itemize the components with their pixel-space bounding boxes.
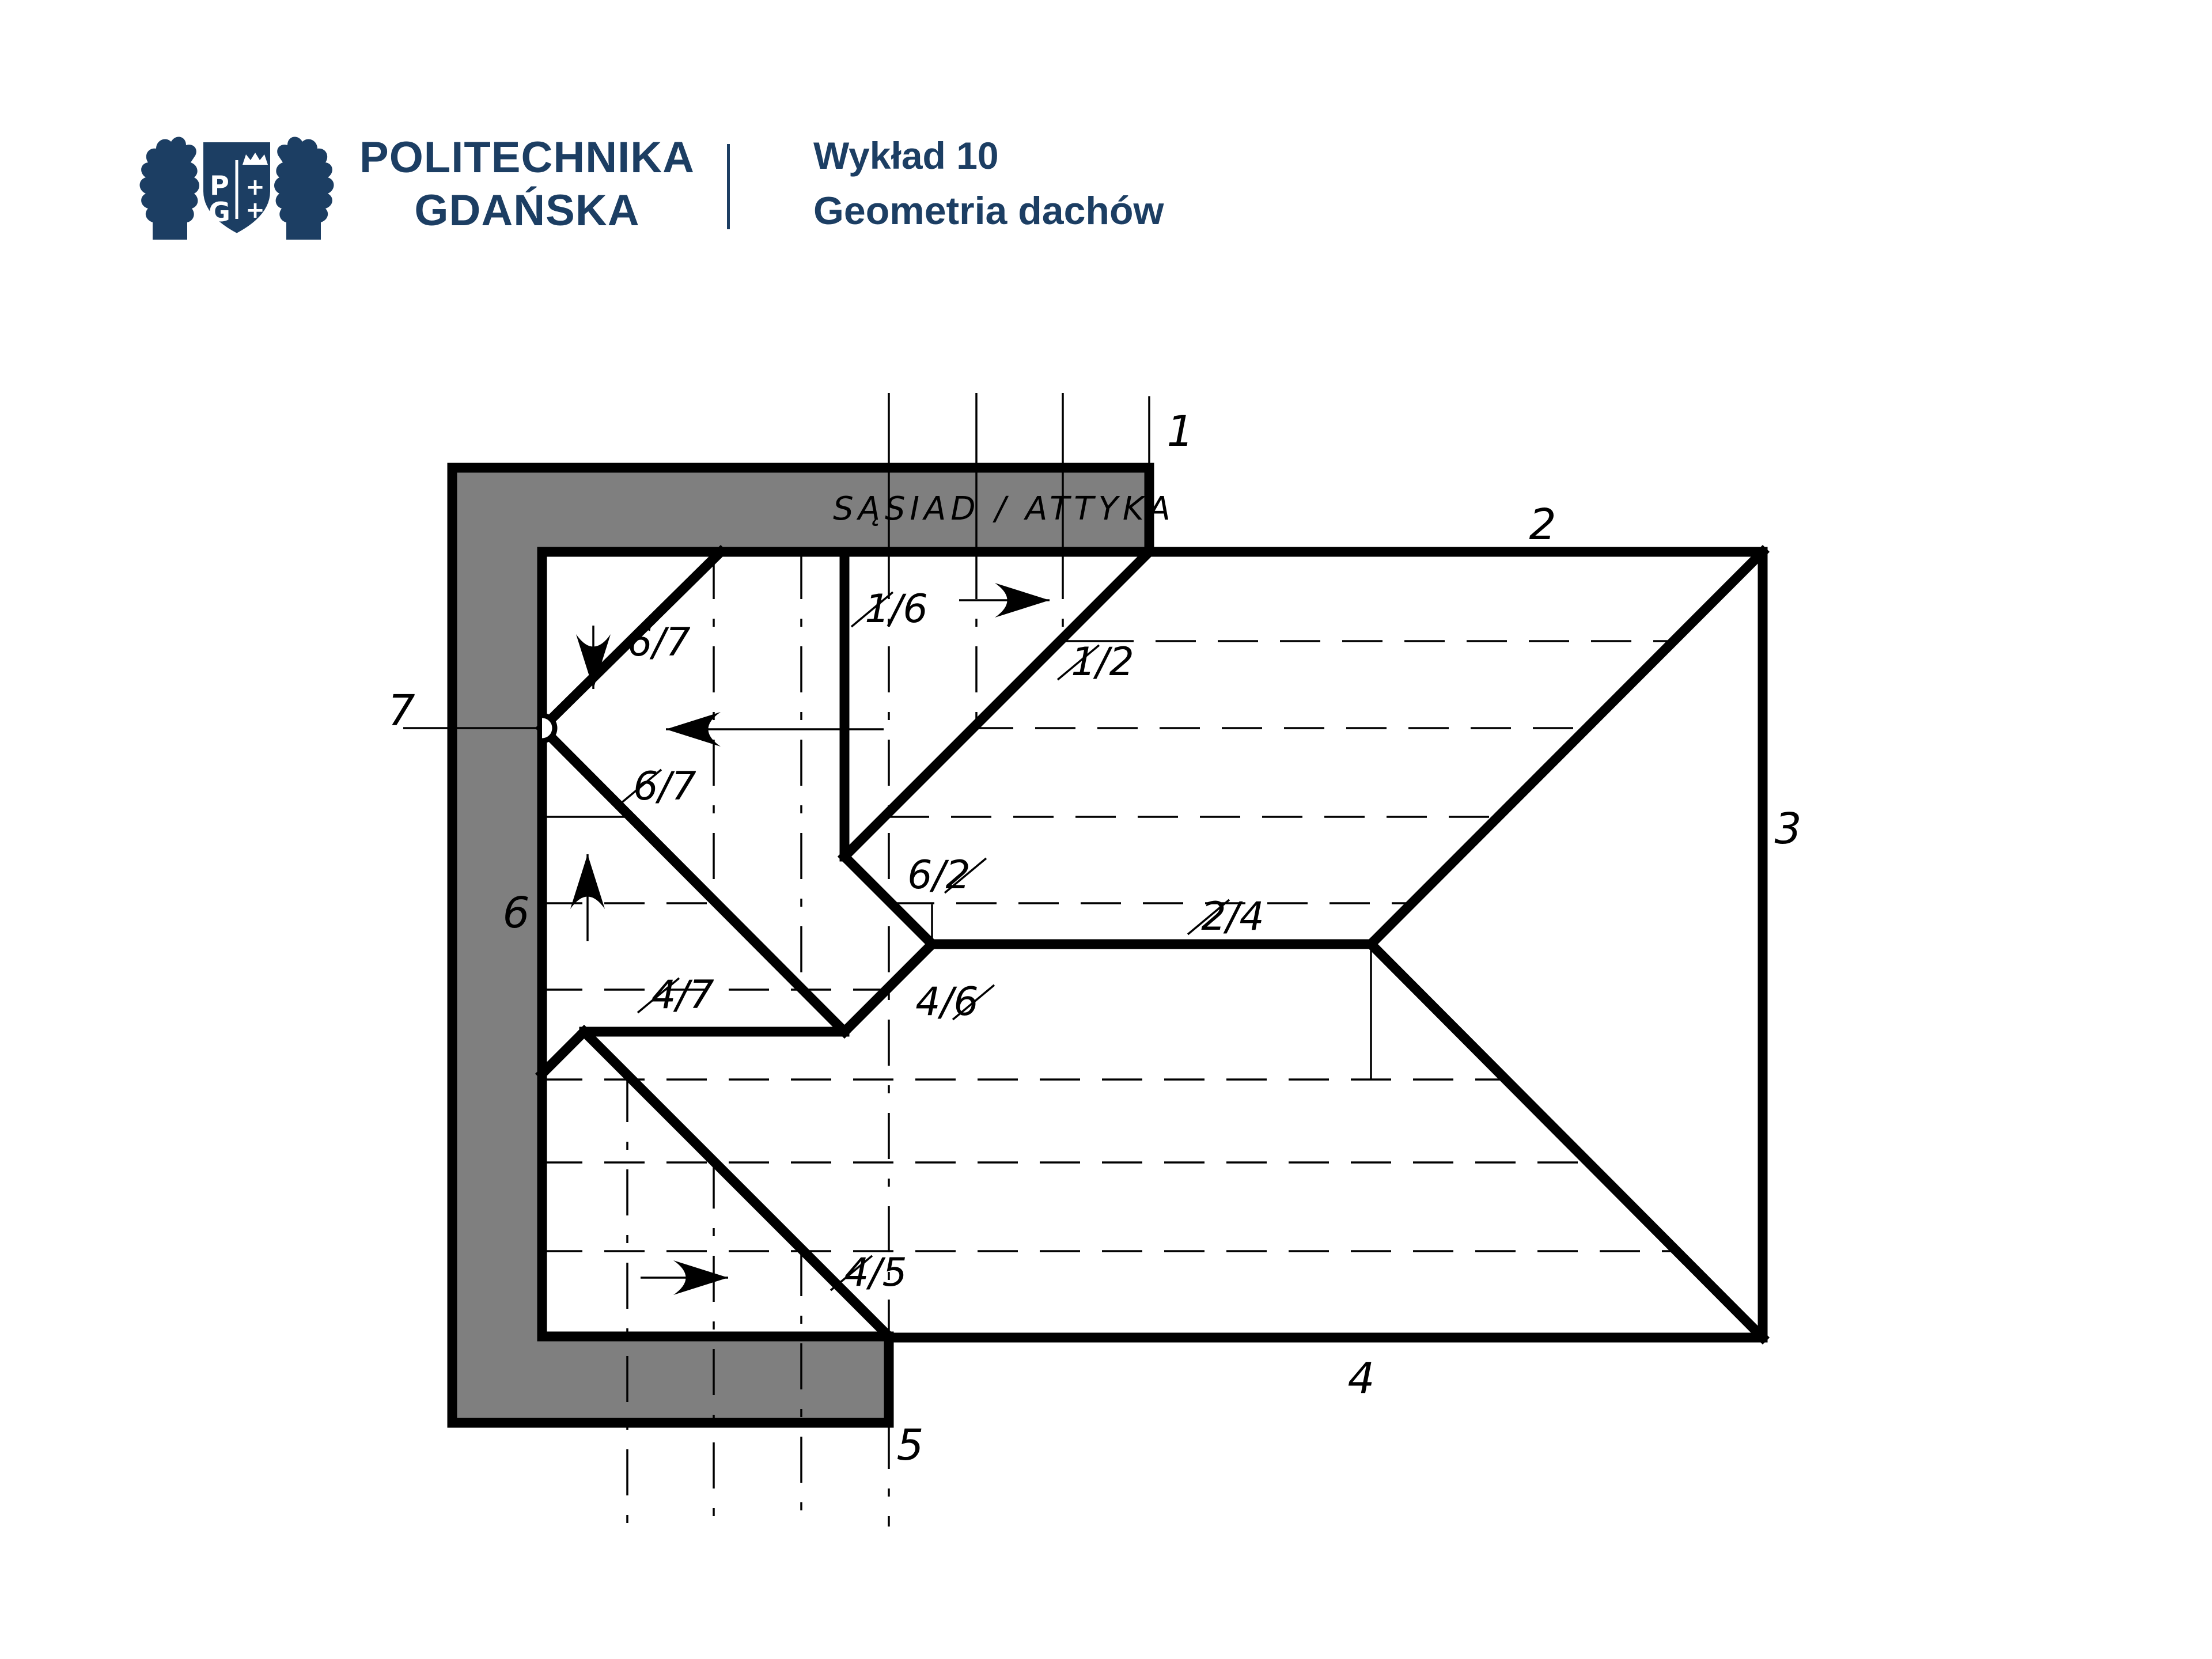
face-pair-label: 1/2 — [1071, 639, 1134, 685]
edge-number-7: 7 — [388, 686, 415, 736]
face-pair-label: 4/5 — [844, 1250, 907, 1296]
face-pair-label: 4/7 — [651, 972, 714, 1018]
roof-edge-line — [1371, 944, 1763, 1338]
face-pair-label: 6/7 — [627, 620, 690, 665]
roof-edge-line — [542, 1032, 584, 1074]
face-pair-label: 2/4 — [1201, 894, 1264, 940]
roof-plan-svg: SĄSIAD / ATTYKA12345671/61/26/76/76/22/4… — [0, 0, 2212, 1659]
edge-number-1: 1 — [1166, 407, 1194, 456]
edge-number-5: 5 — [896, 1421, 923, 1470]
face-pair-label: 6/2 — [907, 853, 970, 898]
edge-number-3: 3 — [1774, 804, 1801, 854]
apex-arc — [542, 715, 555, 741]
edge-number-2: 2 — [1529, 500, 1556, 550]
face-pair-label: 4/6 — [915, 979, 978, 1025]
roof-edge-line — [1371, 552, 1763, 944]
face-pair-label: 6/7 — [633, 764, 696, 809]
edge-number-6: 6 — [502, 888, 529, 938]
edge-number-4: 4 — [1347, 1354, 1374, 1403]
face-pair-label: 1/6 — [865, 586, 927, 632]
attyka-caption: SĄSIAD / ATTYKA — [833, 490, 1175, 528]
